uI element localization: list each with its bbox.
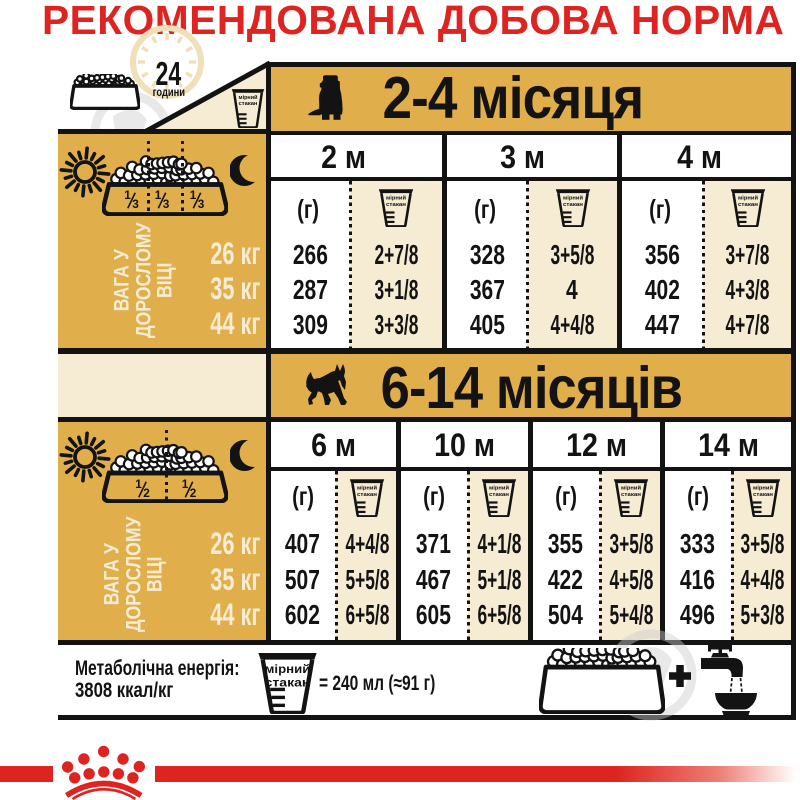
svg-text:3: 3 <box>198 197 205 211</box>
svg-text:мірний: мірний <box>265 664 311 676</box>
svg-text:2: 2 <box>190 486 197 500</box>
svg-text:мірний: мірний <box>738 195 758 202</box>
svg-text:мірний: мірний <box>753 485 773 492</box>
svg-text:1: 1 <box>155 188 162 202</box>
svg-text:2: 2 <box>143 486 150 500</box>
svg-text:3: 3 <box>132 197 139 211</box>
svg-text:стакан: стакан <box>738 202 758 208</box>
svg-text:1: 1 <box>182 477 189 491</box>
svg-text:1: 1 <box>135 477 142 491</box>
svg-text:стакан: стакан <box>265 677 311 689</box>
svg-text:стакан: стакан <box>753 492 773 498</box>
svg-text:стакан: стакан <box>239 101 258 107</box>
svg-text:1: 1 <box>190 188 197 202</box>
svg-text:1: 1 <box>124 188 131 202</box>
svg-text:3: 3 <box>163 197 170 211</box>
